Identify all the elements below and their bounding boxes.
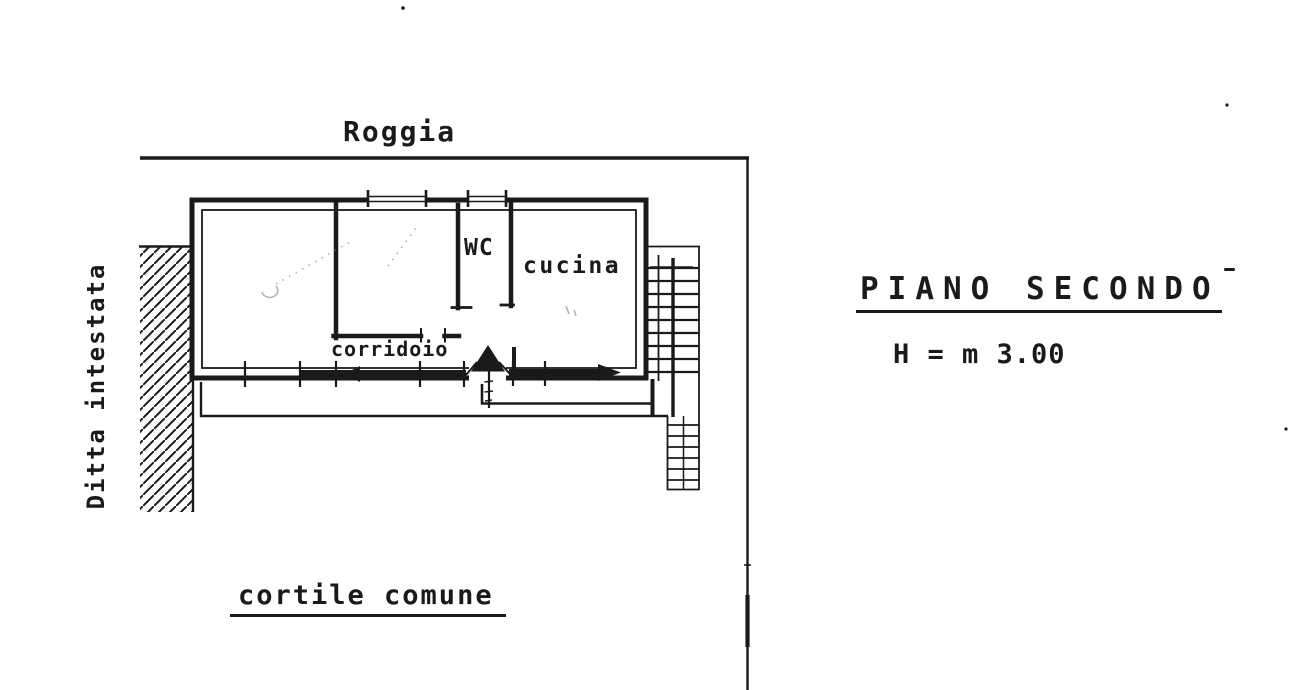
- top-boundary-label: Roggia: [343, 117, 456, 146]
- floor-plan-drawing: [0, 0, 1300, 690]
- terrace-lines: [200, 379, 668, 417]
- floor-height-note: H = m 3.00: [893, 341, 1066, 369]
- corridor-room-label: corridoio: [331, 339, 448, 360]
- scan-specks: [401, 6, 1287, 430]
- adjacent-owner-label: Ditta intestata: [84, 251, 118, 521]
- stairs: [646, 246, 700, 490]
- courtyard-label: cortile comune: [230, 582, 506, 617]
- bottom-wall-openings: [245, 361, 621, 387]
- wc-room-label: WC: [464, 236, 494, 260]
- floor-title: PIANO SECONDO: [856, 273, 1222, 313]
- adjacent-building-hatch: [139, 246, 194, 512]
- floor-plan-page: Roggia Ditta intestata WC cucina corrido…: [0, 0, 1300, 690]
- kitchen-room-label: cucina: [523, 254, 621, 278]
